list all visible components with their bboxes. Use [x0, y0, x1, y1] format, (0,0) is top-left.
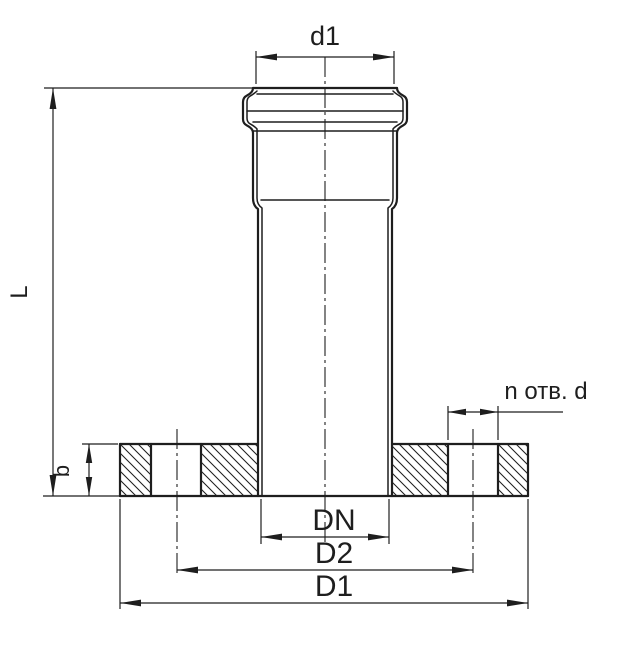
dimension-bolt-holes: n отв. d: [448, 378, 588, 440]
dim-arrow: [507, 600, 528, 607]
dim-arrow: [480, 409, 498, 415]
centerlines: [177, 57, 473, 576]
dimension-b: b: [49, 444, 118, 496]
label-b: b: [49, 465, 74, 477]
technical-drawing: d1 L b n отв. d DN D: [0, 0, 627, 668]
dim-arrow: [452, 567, 473, 574]
label-d1: d1: [310, 21, 340, 51]
hatch-region: [498, 444, 528, 496]
label-L: L: [6, 285, 33, 298]
dim-arrow: [256, 54, 277, 61]
dim-arrow: [368, 534, 389, 541]
drawing-canvas: d1 L b n отв. d DN D: [0, 0, 627, 668]
socket-right-outer-contour: [392, 88, 407, 496]
label-D2: D2: [315, 537, 353, 570]
dim-arrow: [373, 54, 394, 61]
dim-arrow: [86, 444, 92, 463]
dim-arrow: [120, 600, 141, 607]
socket-right-inner-contour: [388, 91, 403, 496]
flange-outline: [120, 444, 528, 496]
label-D1: D1: [315, 570, 353, 603]
socket-left-outer-contour: [243, 88, 258, 496]
dimension-D2: D2: [177, 537, 473, 573]
flange-hatching: [120, 444, 528, 496]
dim-arrow: [177, 567, 198, 574]
dim-arrow: [50, 88, 57, 109]
hatch-region: [201, 444, 258, 496]
dim-arrow: [50, 475, 57, 496]
hatch-region: [392, 444, 448, 496]
dim-arrow: [261, 534, 282, 541]
socket-left-inner-contour: [247, 91, 262, 496]
dimension-L: L: [6, 88, 252, 496]
label-DN: DN: [312, 504, 355, 537]
label-bolt-holes: n отв. d: [504, 378, 587, 405]
dim-arrow: [86, 477, 92, 496]
dim-arrow: [448, 409, 466, 415]
hatch-region: [120, 444, 151, 496]
